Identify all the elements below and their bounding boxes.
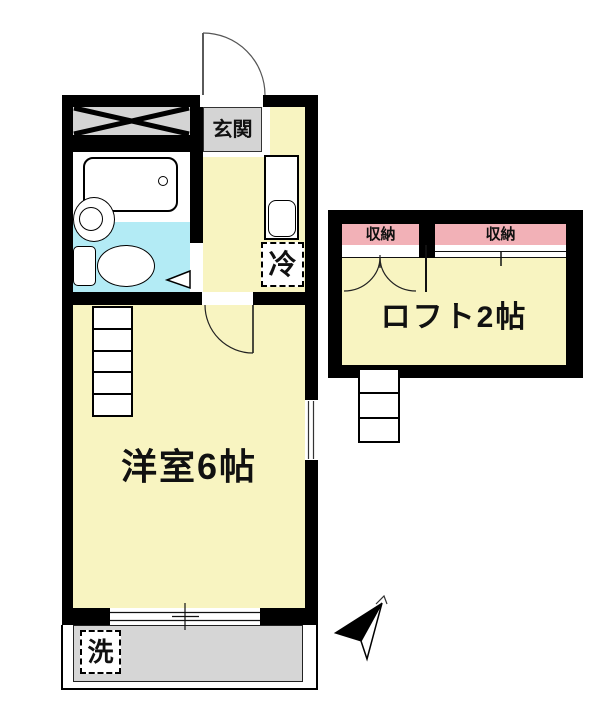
north-arrow-icon: [335, 596, 387, 659]
loft-ladder: [358, 368, 400, 443]
loft-label: ロフト2帖: [342, 300, 566, 336]
bathroom-door-opening: [190, 243, 203, 292]
wash-basin-bowl: [79, 207, 103, 231]
toilet-bowl: [97, 245, 155, 287]
window-right: [305, 400, 318, 460]
ladder-rung: [360, 370, 398, 392]
ladder-rung: [360, 392, 398, 416]
floor-plan: 玄関 冷 洋室6帖 洗 収納 収納 ロフト2帖: [0, 0, 607, 720]
main-room-label: 洋室6帖: [73, 446, 305, 488]
fridge-label: 冷: [268, 251, 296, 279]
entrance-label: 玄関: [213, 120, 253, 140]
washer-label: 洗: [87, 639, 113, 665]
storage-left: 収納: [342, 224, 419, 245]
fridge-space: 冷: [261, 242, 304, 287]
ladder-rung: [94, 393, 131, 415]
main-room-label-text: 洋室6帖: [121, 449, 257, 485]
toilet-tank: [73, 246, 96, 286]
ladder-rung: [360, 417, 398, 441]
storage-right: 収納: [435, 224, 566, 245]
hall-floor-upper: [270, 107, 305, 157]
ladder-rung: [94, 371, 131, 393]
closet-front-right: [435, 245, 566, 258]
loft-label-text: ロフト2帖: [381, 303, 528, 333]
window-bottom: [110, 608, 260, 625]
kitchen-sink: [268, 200, 296, 237]
bathtub-drain-icon: [158, 176, 168, 186]
storage-right-label: 収納: [485, 227, 515, 242]
washer-space: 洗: [80, 630, 121, 674]
storage-left-label: 収納: [365, 227, 395, 242]
entrance-door-arc: [203, 33, 265, 95]
closet-front-left: [342, 245, 419, 258]
entrance-door-opening: [200, 95, 263, 107]
ladder-rung: [94, 350, 131, 372]
ladder-rung: [94, 328, 131, 350]
room-ladder: [92, 306, 133, 417]
entrance-area: 玄関: [203, 107, 262, 152]
ladder-rung: [94, 308, 131, 328]
room-door-opening: [202, 292, 253, 305]
entrance-step-strip-v: [262, 107, 270, 157]
pipe-space: [73, 107, 190, 135]
